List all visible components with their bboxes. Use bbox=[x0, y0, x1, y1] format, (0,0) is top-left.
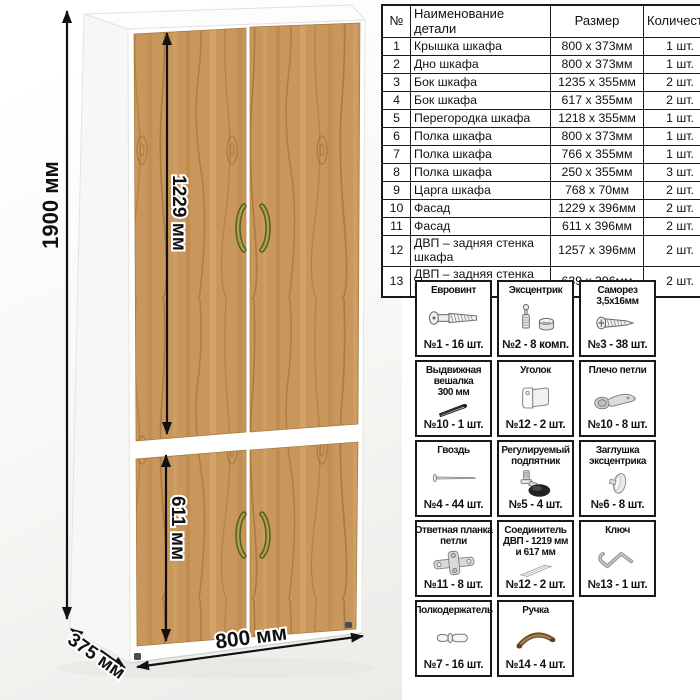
hardware-item: Плечо петли№10 - 8 шт. bbox=[579, 360, 656, 437]
hardware-item-count: №11 - 8 шт. bbox=[424, 579, 483, 593]
part-number: 6 bbox=[382, 128, 411, 146]
part-name: Бок шкафа bbox=[411, 74, 551, 92]
part-number: 12 bbox=[382, 236, 411, 267]
col-header-number: № bbox=[382, 5, 411, 38]
part-name: Фасад bbox=[411, 200, 551, 218]
wardrobe-door-lower-left bbox=[136, 450, 246, 646]
col-header-name: Наименование детали bbox=[411, 5, 551, 38]
table-header-row: № Наименование детали Размер Количество bbox=[382, 5, 700, 38]
part-quantity: 1 шт. bbox=[644, 56, 700, 74]
part-size: 250 x 355мм bbox=[551, 164, 644, 182]
part-number: 13 bbox=[382, 266, 411, 297]
part-number: 5 bbox=[382, 110, 411, 128]
part-quantity: 2 шт. bbox=[644, 200, 700, 218]
part-number: 11 bbox=[382, 218, 411, 236]
hardware-item: Саморез 3,5х16мм№3 - 38 шт. bbox=[579, 280, 656, 357]
part-size: 800 x 373мм bbox=[551, 128, 644, 146]
part-number: 7 bbox=[382, 146, 411, 164]
hardware-item: Гвоздь№4 - 44 шт. bbox=[415, 440, 492, 517]
hardware-item-count: №13 - 1 шт. bbox=[588, 579, 648, 593]
table-row: 10Фасад1229 x 396мм2 шт. bbox=[382, 200, 700, 218]
part-quantity: 3 шт. bbox=[644, 164, 700, 182]
hardware-item-title: Соединитель ДВП - 1219 мм и 617 мм bbox=[503, 525, 568, 559]
hardware-item-title: Ручка bbox=[522, 605, 549, 616]
part-number: 4 bbox=[382, 92, 411, 110]
part-size: 1229 x 396мм bbox=[551, 200, 644, 218]
eccentric-icon bbox=[500, 296, 571, 339]
part-size: 1257 x 396мм bbox=[551, 236, 644, 267]
table-row: 5Перегородка шкафа1218 x 355мм1 шт. bbox=[382, 110, 700, 128]
part-name: Перегородка шкафа bbox=[411, 110, 551, 128]
hardware-item-count: №6 - 8 шт. bbox=[591, 499, 644, 513]
table-row: 8Полка шкафа250 x 355мм3 шт. bbox=[382, 164, 700, 182]
hardware-item-count: №4 - 44 шт. bbox=[424, 499, 484, 513]
hardware-item-count: №10 - 8 шт. bbox=[588, 419, 648, 433]
hardware-item: Соединитель ДВП - 1219 мм и 617 мм№12 - … bbox=[497, 520, 574, 597]
table-row: 7Полка шкафа766 x 355мм1 шт. bbox=[382, 146, 700, 164]
hardware-item-count: №2 - 8 комп. bbox=[502, 339, 569, 353]
eurovint-icon bbox=[418, 296, 489, 339]
hardware-item-title: Ответная планка петли bbox=[415, 525, 493, 547]
table-row: 1Крышка шкафа800 x 373мм1 шт. bbox=[382, 38, 700, 56]
hardware-item-count: №12 - 2 шт. bbox=[506, 579, 566, 593]
hardware-item: Ключ№13 - 1 шт. bbox=[579, 520, 656, 597]
table-row: 12ДВП – задняя стенка шкафа1257 x 396мм2… bbox=[382, 236, 700, 267]
dimension-label-upper-door: 1229 мм bbox=[168, 175, 189, 251]
hardware-item-count: №7 - 16 шт. bbox=[424, 659, 484, 673]
hardware-grid: Евровинт№1 - 16 шт.Эксцентрик№2 - 8 комп… bbox=[415, 280, 656, 677]
part-quantity: 1 шт. bbox=[644, 110, 700, 128]
cabinet-foot bbox=[345, 622, 352, 628]
part-number: 10 bbox=[382, 200, 411, 218]
eccentric-cap-icon bbox=[582, 467, 653, 499]
part-quantity: 2 шт. bbox=[644, 74, 700, 92]
hardware-item-count: №3 - 38 шт. bbox=[588, 339, 648, 353]
part-quantity: 1 шт. bbox=[644, 38, 700, 56]
handle-icon bbox=[500, 616, 571, 659]
part-name: Полка шкафа bbox=[411, 164, 551, 182]
hardware-item-title: Заглушка эксцентрика bbox=[589, 445, 646, 467]
part-quantity: 1 шт. bbox=[644, 146, 700, 164]
hardware-item-title: Саморез 3,5х16мм bbox=[596, 285, 638, 307]
hardware-item-count: №1 - 16 шт. bbox=[424, 339, 484, 353]
hardware-item: Заглушка эксцентрика№6 - 8 шт. bbox=[579, 440, 656, 517]
assembly-sheet: 1900 мм 1229 мм 611 мм 800 мм 375 мм № Н… bbox=[0, 0, 700, 700]
cabinet-foot bbox=[134, 653, 141, 660]
hardware-item: Эксцентрик№2 - 8 комп. bbox=[497, 280, 574, 357]
part-name: Фасад bbox=[411, 218, 551, 236]
hardware-item-title: Выдвижная вешалка 300 мм bbox=[426, 365, 481, 399]
hardware-item-title: Ключ bbox=[605, 525, 630, 536]
wardrobe-illustration: 1900 мм 1229 мм 611 мм 800 мм 375 мм bbox=[0, 0, 402, 700]
part-size: 1218 x 355мм bbox=[551, 110, 644, 128]
part-size: 1235 x 355мм bbox=[551, 74, 644, 92]
parts-table-body: 1Крышка шкафа800 x 373мм1 шт.2Дно шкафа8… bbox=[382, 38, 700, 298]
part-size: 611 x 396мм bbox=[551, 218, 644, 236]
hardware-item-title: Евровинт bbox=[431, 285, 476, 296]
hardware-item: Полкодержатель№7 - 16 шт. bbox=[415, 600, 492, 677]
part-size: 800 x 373мм bbox=[551, 38, 644, 56]
hardware-item-count: №14 - 4 шт. bbox=[506, 659, 566, 673]
part-size: 800 x 373мм bbox=[551, 56, 644, 74]
hardware-item: Ручка№14 - 4 шт. bbox=[497, 600, 574, 677]
col-header-quantity: Количество bbox=[644, 5, 700, 38]
dimension-label-lower-door: 611 мм bbox=[167, 496, 188, 560]
part-size: 768 x 70мм bbox=[551, 182, 644, 200]
part-name: Бок шкафа bbox=[411, 92, 551, 110]
part-size: 766 x 355мм bbox=[551, 146, 644, 164]
hardware-item-title: Эксцентрик bbox=[509, 285, 562, 296]
hardware-item-title: Гвоздь bbox=[437, 445, 469, 456]
part-quantity: 2 шт. bbox=[644, 182, 700, 200]
screw-icon bbox=[582, 307, 653, 339]
hardware-item: Регулируемый подпятник№5 - 4 шт. bbox=[497, 440, 574, 517]
hanger-rail-icon bbox=[418, 399, 489, 419]
parts-table: № Наименование детали Размер Количество … bbox=[381, 4, 700, 298]
part-number: 8 bbox=[382, 164, 411, 182]
hardware-item-count: №10 - 1 шт. bbox=[424, 419, 484, 433]
part-name: Крышка шкафа bbox=[411, 38, 551, 56]
part-number: 9 bbox=[382, 182, 411, 200]
table-row: 9Царга шкафа768 x 70мм2 шт. bbox=[382, 182, 700, 200]
hardware-item: Ответная планка петли№11 - 8 шт. bbox=[415, 520, 492, 597]
part-quantity: 2 шт. bbox=[644, 92, 700, 110]
hardware-item-title: Регулируемый подпятник bbox=[501, 445, 569, 467]
part-number: 1 bbox=[382, 38, 411, 56]
part-name: Полка шкафа bbox=[411, 146, 551, 164]
hardware-item: Евровинт№1 - 16 шт. bbox=[415, 280, 492, 357]
part-quantity: 2 шт. bbox=[644, 218, 700, 236]
part-number: 2 bbox=[382, 56, 411, 74]
hardware-item-title: Плечо петли bbox=[589, 365, 647, 376]
table-row: 3Бок шкафа1235 x 355мм2 шт. bbox=[382, 74, 700, 92]
hinge-arm-icon bbox=[582, 376, 653, 419]
hinge-plate-icon bbox=[418, 547, 489, 579]
nail-icon bbox=[418, 456, 489, 499]
hardware-item-count: №12 - 2 шт. bbox=[506, 419, 566, 433]
hardware-item-count: №5 - 4 шт. bbox=[509, 499, 562, 513]
part-name: ДВП – задняя стенка шкафа bbox=[411, 236, 551, 267]
part-number: 3 bbox=[382, 74, 411, 92]
dimension-label-total-height: 1900 мм bbox=[38, 161, 63, 249]
part-size: 617 x 355мм bbox=[551, 92, 644, 110]
cabinet-side-panel bbox=[70, 14, 130, 663]
table-row: 11Фасад611 x 396мм2 шт. bbox=[382, 218, 700, 236]
hardware-item: Выдвижная вешалка 300 мм№10 - 1 шт. bbox=[415, 360, 492, 437]
part-name: Царга шкафа bbox=[411, 182, 551, 200]
hardware-item-title: Полкодержатель bbox=[414, 605, 492, 616]
table-row: 2Дно шкафа800 x 373мм1 шт. bbox=[382, 56, 700, 74]
part-name: Полка шкафа bbox=[411, 128, 551, 146]
wardrobe-door-upper-left bbox=[134, 28, 246, 441]
part-name: Дно шкафа bbox=[411, 56, 551, 74]
dvp-connector-icon bbox=[500, 559, 571, 579]
hex-key-icon bbox=[582, 536, 653, 579]
hardware-item: Уголок№12 - 2 шт. bbox=[497, 360, 574, 437]
part-quantity: 2 шт. bbox=[644, 236, 700, 267]
shelf-pin-icon bbox=[418, 616, 489, 659]
col-header-size: Размер bbox=[551, 5, 644, 38]
hardware-item-title: Уголок bbox=[520, 365, 551, 376]
table-row: 4Бок шкафа617 x 355мм2 шт. bbox=[382, 92, 700, 110]
adjustable-foot-icon bbox=[500, 467, 571, 499]
part-quantity: 1 шт. bbox=[644, 128, 700, 146]
corner-bracket-icon bbox=[500, 376, 571, 419]
table-row: 6Полка шкафа800 x 373мм1 шт. bbox=[382, 128, 700, 146]
